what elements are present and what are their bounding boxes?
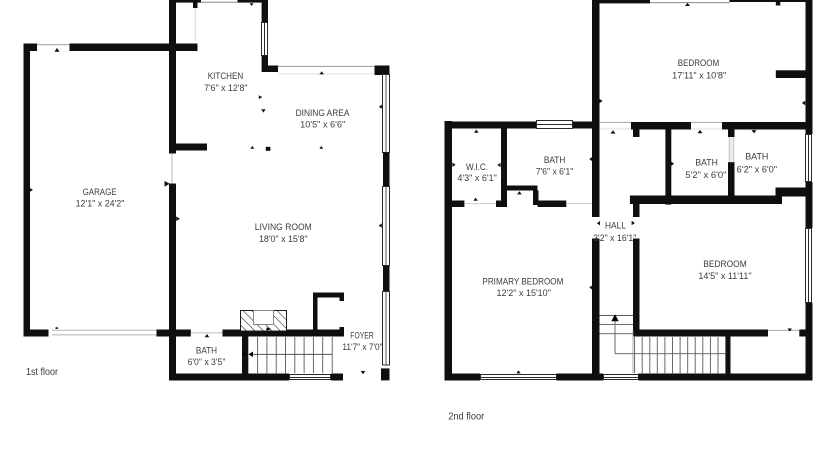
svg-text:BATH: BATH xyxy=(544,155,566,165)
svg-text:DINING AREA: DINING AREA xyxy=(296,108,350,118)
svg-text:LIVING ROOM: LIVING ROOM xyxy=(255,222,312,232)
svg-text:12'2" x 15'10": 12'2" x 15'10" xyxy=(497,288,551,298)
svg-text:KITCHEN: KITCHEN xyxy=(208,71,243,81)
svg-text:6'0" x 3'5": 6'0" x 3'5" xyxy=(188,357,226,367)
svg-text:GARAGE: GARAGE xyxy=(83,187,117,197)
svg-text:10'5" x 6'6": 10'5" x 6'6" xyxy=(300,120,345,130)
svg-text:BATH: BATH xyxy=(695,158,718,168)
svg-text:HALL: HALL xyxy=(605,221,626,231)
svg-text:12'1" x 24'2": 12'1" x 24'2" xyxy=(76,199,125,209)
svg-text:3'2" x 16'1": 3'2" x 16'1" xyxy=(593,233,636,243)
svg-text:17'11" x 10'8": 17'11" x 10'8" xyxy=(672,70,726,80)
svg-text:W.I.C.: W.I.C. xyxy=(466,162,488,172)
svg-text:BEDROOM: BEDROOM xyxy=(703,259,747,269)
svg-text:1st floor: 1st floor xyxy=(26,367,59,378)
svg-text:BATH: BATH xyxy=(745,152,768,162)
svg-text:BATH: BATH xyxy=(196,345,217,355)
svg-text:11'7" x 7'0": 11'7" x 7'0" xyxy=(342,342,382,352)
svg-text:PRIMARY BEDROOM: PRIMARY BEDROOM xyxy=(482,277,563,287)
svg-text:FOYER: FOYER xyxy=(350,331,374,341)
svg-text:5'2" x 6'0": 5'2" x 6'0" xyxy=(685,170,726,180)
svg-text:BEDROOM: BEDROOM xyxy=(678,58,720,68)
svg-text:7'6" x 6'1": 7'6" x 6'1" xyxy=(536,166,574,176)
svg-text:6'2" x 6'0": 6'2" x 6'0" xyxy=(737,164,777,174)
svg-text:4'3" x 6'1": 4'3" x 6'1" xyxy=(457,173,497,183)
svg-text:7'6" x 12'8": 7'6" x 12'8" xyxy=(204,83,247,93)
svg-text:2nd floor: 2nd floor xyxy=(448,411,485,422)
svg-text:14'5" x 11'11": 14'5" x 11'11" xyxy=(698,271,751,281)
svg-text:18'0" x 15'8": 18'0" x 15'8" xyxy=(259,234,308,244)
